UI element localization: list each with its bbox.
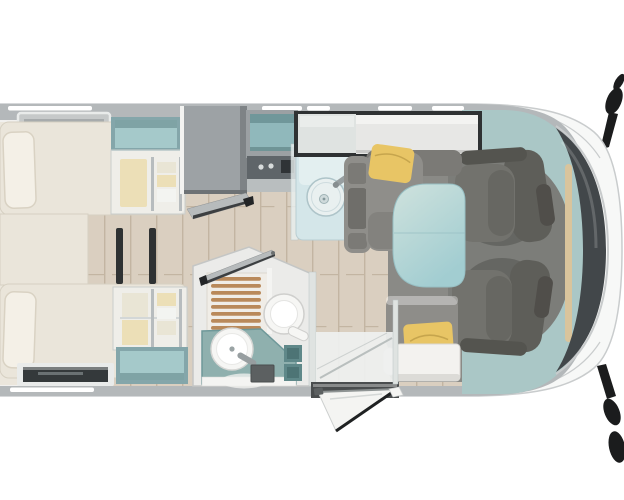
driver-seat-shade bbox=[488, 170, 514, 236]
pillow-top-shape bbox=[3, 131, 37, 208]
frosted-window-sheen bbox=[300, 116, 354, 127]
bathroom-glass-wall bbox=[309, 272, 316, 386]
driver-seat bbox=[455, 147, 556, 245]
hob-knob bbox=[258, 164, 263, 169]
wardrobe-bottom-frosted-door bbox=[113, 287, 187, 350]
wardrobe-bottom bbox=[113, 287, 187, 350]
entry-glass-screen bbox=[393, 300, 398, 384]
roof-strip bbox=[262, 106, 302, 111]
roof-strip bbox=[8, 106, 92, 111]
shower-wood-slat bbox=[211, 305, 261, 309]
window-top-shadow bbox=[115, 120, 177, 128]
floorplan-page bbox=[0, 0, 624, 500]
shower-wood-slat bbox=[211, 291, 261, 295]
bathroom-teal-cabinet-inner bbox=[287, 367, 299, 378]
shower-wood-slat bbox=[211, 298, 261, 302]
fridge-side-shade bbox=[240, 106, 247, 194]
roof-strip bbox=[307, 106, 330, 111]
bathroom bbox=[193, 247, 316, 389]
shower-tray bbox=[207, 273, 269, 334]
bathroom-bin bbox=[251, 365, 274, 382]
motorhome-floorplan-svg bbox=[0, 0, 624, 500]
window-bottom-shadow bbox=[120, 373, 184, 380]
wardrobe-top-frosted-door bbox=[111, 150, 185, 214]
open-cabinet-shelf bbox=[250, 147, 294, 151]
roof-strip bbox=[432, 106, 464, 111]
dinette-table bbox=[393, 184, 465, 287]
yellow-cushion-top-shape bbox=[368, 143, 415, 184]
passenger-seat-shade bbox=[486, 276, 512, 342]
shower-wood-slat bbox=[211, 312, 261, 316]
bathroom-teal-cabinet-inner bbox=[287, 348, 299, 359]
bed-side-vent-highlight bbox=[23, 367, 108, 370]
fridge-left-trim bbox=[180, 106, 184, 194]
bed-side-vent-reflection bbox=[38, 372, 83, 375]
roof-strip-bottom bbox=[10, 388, 94, 393]
roof-strip bbox=[378, 106, 412, 111]
dinette-armrest-pad bbox=[348, 163, 367, 184]
passenger-seat bbox=[452, 258, 554, 357]
roof-vent-slat bbox=[24, 119, 104, 122]
pillow-top bbox=[3, 131, 37, 208]
kitchen-step bbox=[247, 179, 297, 192]
hob-knob bbox=[268, 163, 273, 168]
overhead-locker-top bbox=[356, 115, 478, 124]
shower-wood-slat bbox=[211, 319, 261, 323]
fridge-body bbox=[184, 106, 247, 194]
washbasin-drain bbox=[229, 346, 234, 351]
entry-door-hinge bbox=[314, 387, 324, 395]
shower-wood-slat bbox=[211, 284, 261, 288]
bed-step-leg bbox=[149, 228, 156, 284]
dinette-armrest-pad bbox=[348, 188, 367, 229]
wardrobe-top bbox=[111, 150, 185, 214]
entry-threshold-highlight bbox=[313, 384, 397, 387]
kitchen-sink-drain-dot bbox=[323, 198, 326, 201]
yellow-cushion-top bbox=[368, 143, 415, 184]
pillow-bottom-shape bbox=[3, 291, 37, 368]
dinette-bench-bottom-shadow bbox=[396, 374, 460, 381]
dinette-armrest-pad bbox=[348, 233, 367, 249]
open-cabinet-shadow bbox=[250, 114, 294, 123]
fridge-bottom-edge bbox=[184, 190, 247, 194]
windshield-pillar bbox=[565, 164, 572, 342]
toilet-seat bbox=[271, 301, 298, 328]
center-cushion bbox=[0, 214, 88, 285]
bed-step-leg bbox=[116, 228, 123, 284]
pillow-bottom bbox=[3, 291, 37, 368]
bathroom-door-hinge bbox=[271, 251, 275, 255]
